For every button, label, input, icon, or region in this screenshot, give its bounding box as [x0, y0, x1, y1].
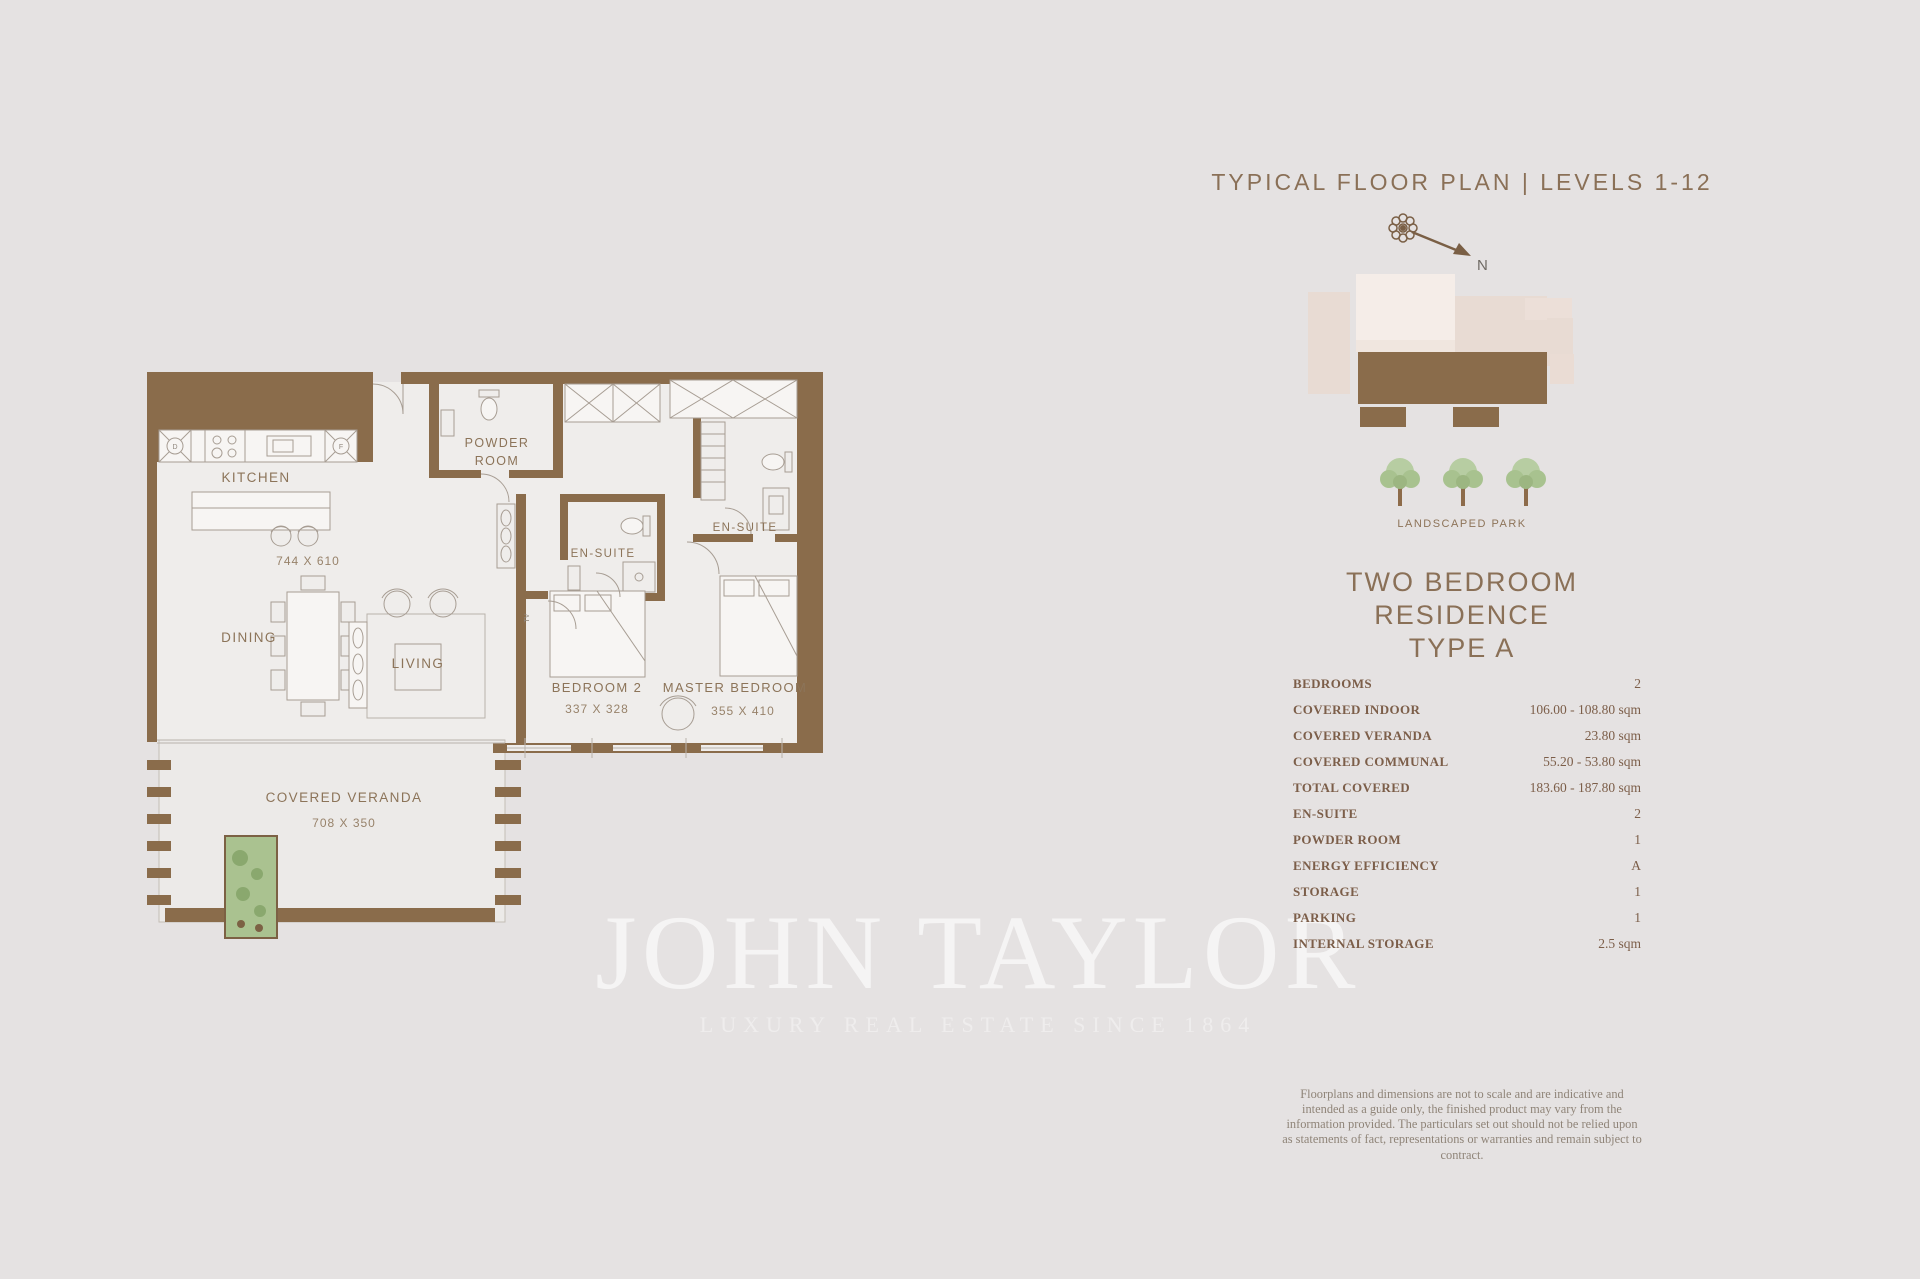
bedroom2-label: BEDROOM 2	[552, 680, 643, 695]
powder-room-label-2: ROOM	[475, 454, 520, 468]
spec-row: COVERED INDOOR106.00 - 108.80 sqm	[1293, 702, 1641, 728]
spec-label: COVERED INDOOR	[1293, 702, 1420, 718]
spec-row: BEDROOMS2	[1293, 676, 1641, 702]
tree-icon	[1380, 458, 1420, 506]
spec-row: ENERGY EFFICIENCYA	[1293, 858, 1641, 884]
spec-value: 2.5 sqm	[1598, 936, 1641, 952]
master-label: MASTER BEDROOM	[663, 680, 808, 695]
bed-bedroom2	[550, 591, 645, 677]
key-plan-blocks	[1308, 274, 1574, 427]
highlighted-unit-a	[1358, 352, 1455, 404]
park-label: LANDSCAPED PARK	[1362, 518, 1562, 530]
spec-label: INTERNAL STORAGE	[1293, 936, 1434, 952]
spec-label: STORAGE	[1293, 884, 1359, 900]
spec-label: TOTAL COVERED	[1293, 780, 1410, 796]
spec-row: TOTAL COVERED183.60 - 187.80 sqm	[1293, 780, 1641, 806]
spec-value: 1	[1634, 884, 1641, 900]
kitchen-label: KITCHEN	[221, 470, 290, 485]
watermark-tagline: LUXURY REAL ESTATE SINCE 1864	[558, 1012, 1398, 1038]
floorplan-brochure-page: { "page": {"background": "#e5e2e2", "wal…	[0, 0, 1920, 1279]
highlighted-unit-b	[1455, 352, 1547, 404]
spec-value: 2	[1634, 676, 1641, 692]
bedroom2-dims: 337 X 328	[565, 702, 629, 716]
tree-icon	[1443, 458, 1483, 506]
veranda-floor	[159, 740, 505, 922]
spec-row: INTERNAL STORAGE2.5 sqm	[1293, 936, 1641, 962]
spec-label: ENERGY EFFICIENCY	[1293, 858, 1439, 874]
spec-row: PARKING1	[1293, 910, 1641, 936]
residence-title-line1: TWO BEDROOM RESIDENCE	[1262, 566, 1662, 632]
planter	[225, 836, 277, 938]
ensuite2-label: EN-SUITE	[571, 548, 636, 560]
dining-label: DINING	[221, 630, 277, 645]
master-dims: 355 X 410	[711, 704, 775, 718]
spec-row: EN-SUITE2	[1293, 806, 1641, 832]
floor-plan-drawing: D F	[145, 366, 845, 956]
spec-value: 1	[1634, 832, 1641, 848]
north-arrow-icon	[1412, 232, 1461, 252]
page-title: TYPICAL FLOOR PLAN | LEVELS 1-12	[1209, 169, 1715, 196]
disclaimer-text: Floorplans and dimensions are not to sca…	[1282, 1087, 1642, 1163]
residence-title-line2: TYPE A	[1262, 632, 1662, 665]
spec-label: PARKING	[1293, 910, 1356, 926]
sofa-icon	[349, 622, 367, 708]
building-key-plan	[1300, 262, 1590, 442]
spec-value: 23.80 sqm	[1585, 728, 1641, 744]
spec-label: BEDROOMS	[1293, 676, 1372, 692]
appliance-d-label: D	[172, 444, 177, 451]
spec-value: 2	[1634, 806, 1641, 822]
veranda-dims: 708 X 350	[312, 816, 376, 830]
tv-label: TV	[524, 613, 531, 622]
kitchen-counter: D F	[159, 430, 357, 462]
spec-label: POWDER ROOM	[1293, 832, 1401, 848]
spec-row: COVERED VERANDA23.80 sqm	[1293, 728, 1641, 754]
master-wardrobe	[670, 380, 797, 418]
residence-title: TWO BEDROOM RESIDENCE TYPE A	[1262, 566, 1662, 665]
landscaped-park-trees	[1368, 440, 1558, 520]
spec-label: EN-SUITE	[1293, 806, 1358, 822]
spec-value: 1	[1634, 910, 1641, 926]
master-ensuite-label: EN-SUITE	[713, 522, 778, 534]
spec-value: 55.20 - 53.80 sqm	[1543, 754, 1641, 770]
spec-value: 183.60 - 187.80 sqm	[1530, 780, 1641, 796]
spec-table: BEDROOMS2 COVERED INDOOR106.00 - 108.80 …	[1293, 676, 1641, 962]
kitchen-dims: 744 X 610	[276, 554, 340, 568]
spec-value: A	[1631, 858, 1641, 874]
living-label: LIVING	[392, 656, 445, 671]
tree-icon	[1506, 458, 1546, 506]
spec-label: COVERED COMMUNAL	[1293, 754, 1449, 770]
spec-row: STORAGE1	[1293, 884, 1641, 910]
appliance-f-label: F	[339, 444, 343, 451]
spec-value: 106.00 - 108.80 sqm	[1530, 702, 1641, 718]
spec-row: COVERED COMMUNAL55.20 - 53.80 sqm	[1293, 754, 1641, 780]
powder-room-label-1: POWDER	[465, 436, 530, 450]
spec-label: COVERED VERANDA	[1293, 728, 1432, 744]
veranda-label: COVERED VERANDA	[266, 790, 423, 805]
veranda-edge-wall	[165, 908, 495, 922]
spec-row: POWDER ROOM1	[1293, 832, 1641, 858]
